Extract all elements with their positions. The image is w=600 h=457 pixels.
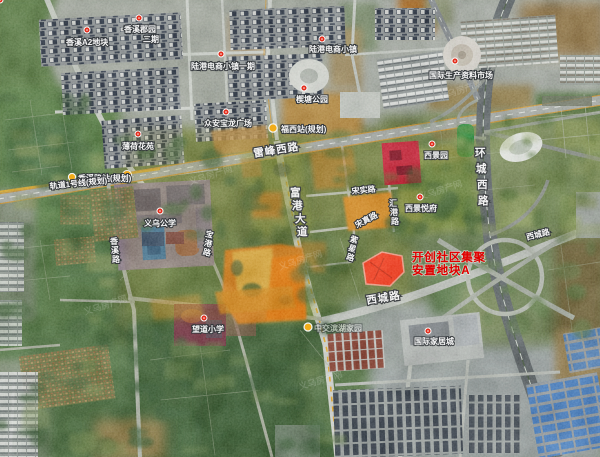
svg-text:众安宝龙广场: 众安宝龙广场 — [204, 118, 252, 128]
svg-text:城: 城 — [476, 162, 488, 175]
svg-text:楔塘公园: 楔塘公园 — [296, 94, 328, 104]
svg-text:安置地块A: 安置地块A — [412, 263, 470, 277]
svg-text:香: 香 — [109, 236, 119, 246]
svg-text:望道小学: 望道小学 — [192, 324, 224, 334]
svg-text:大: 大 — [295, 212, 307, 225]
svg-text:薄荷花苑: 薄荷花苑 — [122, 141, 154, 151]
svg-text:环: 环 — [475, 147, 487, 159]
svg-text:陆港电商小镇一期: 陆港电商小镇一期 — [191, 61, 255, 71]
svg-text:香溪郡园: 香溪郡园 — [123, 24, 156, 34]
svg-text:富: 富 — [290, 186, 302, 199]
svg-text:溪: 溪 — [111, 245, 120, 255]
svg-text:西景园: 西景园 — [424, 150, 448, 160]
svg-text:开创社区集聚: 开创社区集聚 — [412, 250, 486, 264]
svg-text:港: 港 — [390, 207, 399, 217]
svg-text:中交滨湖家园: 中交滨湖家园 — [314, 323, 362, 333]
svg-text:路: 路 — [112, 254, 121, 264]
svg-text:二期: 二期 — [143, 34, 159, 44]
svg-text:汇: 汇 — [389, 198, 397, 208]
svg-text:路: 路 — [478, 194, 490, 207]
svg-text:义乌公学: 义乌公学 — [143, 218, 176, 228]
svg-text:港: 港 — [292, 199, 304, 212]
svg-text:路: 路 — [391, 216, 400, 226]
svg-text:陆港电商小镇: 陆港电商小镇 — [309, 44, 357, 54]
svg-text:国际家居城: 国际家居城 — [414, 336, 454, 346]
svg-text:西景悦府: 西景悦府 — [405, 203, 437, 213]
svg-text:西: 西 — [477, 179, 489, 191]
svg-text:国际生产资料市场: 国际生产资料市场 — [429, 70, 493, 80]
svg-text:道: 道 — [297, 225, 309, 238]
svg-text:福西站(规划): 福西站(规划) — [280, 124, 327, 134]
svg-text:香溪A2地块: 香溪A2地块 — [65, 37, 109, 47]
